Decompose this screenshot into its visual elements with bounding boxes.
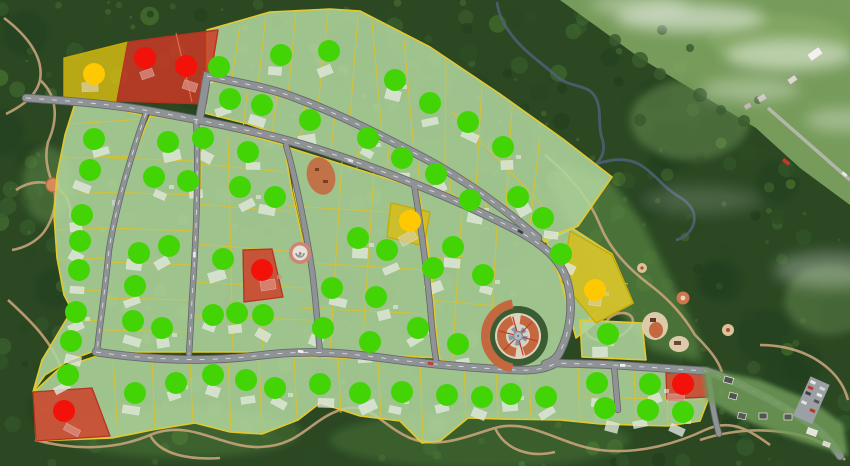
- lot-status-dot-y[interactable]: [83, 63, 105, 85]
- shed-rooftop: [169, 185, 174, 189]
- lot-status-dot-g[interactable]: [202, 304, 224, 326]
- lot-status-dot-g[interactable]: [391, 147, 413, 169]
- lot-status-dot-g[interactable]: [299, 109, 321, 131]
- house-rooftop: [444, 258, 461, 269]
- shed-rooftop: [664, 389, 669, 393]
- lot-status-dot-g[interactable]: [229, 176, 251, 198]
- lot-status-dot-g[interactable]: [208, 56, 230, 78]
- shed-rooftop: [288, 393, 293, 397]
- lot-status-dot-g[interactable]: [309, 373, 331, 395]
- spiral-park: [289, 242, 311, 264]
- lot-status-dot-g[interactable]: [71, 204, 93, 226]
- lot-status-dot-g[interactable]: [472, 264, 494, 286]
- lot-status-dot-g[interactable]: [192, 127, 214, 149]
- lot-status-dot-g[interactable]: [357, 127, 379, 149]
- lot-status-dot-g[interactable]: [212, 248, 234, 270]
- lot-status-dot-g[interactable]: [151, 317, 173, 339]
- lot-status-dot-r[interactable]: [672, 373, 694, 395]
- lot-status-dot-g[interactable]: [251, 94, 273, 116]
- lot-status-dot-g[interactable]: [535, 386, 557, 408]
- lot-status-dot-r[interactable]: [175, 55, 197, 77]
- lot-status-dot-g[interactable]: [202, 364, 224, 386]
- lot-status-dot-g[interactable]: [447, 333, 469, 355]
- lot-status-dot-g[interactable]: [122, 310, 144, 332]
- shed-rooftop: [256, 195, 261, 199]
- lot-status-dot-r[interactable]: [251, 259, 273, 281]
- lot-status-dot-g[interactable]: [219, 88, 241, 110]
- lot-status-dot-g[interactable]: [639, 373, 661, 395]
- lot-status-dot-g[interactable]: [68, 259, 90, 281]
- lot-status-dot-g[interactable]: [492, 136, 514, 158]
- house-rooftop: [70, 286, 84, 294]
- lot-status-dot-g[interactable]: [321, 277, 343, 299]
- lot-status-dot-g[interactable]: [407, 317, 429, 339]
- lot-status-dot-g[interactable]: [264, 186, 286, 208]
- lot-status-dot-g[interactable]: [500, 383, 522, 405]
- shed-rooftop: [393, 305, 398, 309]
- lot-status-dot-r[interactable]: [134, 47, 156, 69]
- lot-status-dot-g[interactable]: [124, 382, 146, 404]
- shed-rooftop: [277, 275, 282, 279]
- lot-status-dot-g[interactable]: [597, 323, 619, 345]
- lot-status-dot-g[interactable]: [264, 377, 286, 399]
- lot-status-dot-g[interactable]: [594, 397, 616, 419]
- lot-status-dot-g[interactable]: [237, 141, 259, 163]
- lot-status-dot-g[interactable]: [270, 44, 292, 66]
- house-rooftop: [318, 398, 334, 408]
- lot-status-dot-g[interactable]: [422, 257, 444, 279]
- house-rooftop: [592, 347, 607, 357]
- lot-status-dot-g[interactable]: [158, 235, 180, 257]
- house-rooftop: [156, 338, 169, 349]
- lot-status-dot-g[interactable]: [124, 275, 146, 297]
- lot-status-dot-g[interactable]: [79, 159, 101, 181]
- shed-rooftop: [172, 333, 177, 337]
- lot-status-dot-g[interactable]: [442, 236, 464, 258]
- house-rooftop: [228, 324, 242, 334]
- lot-status-dot-g[interactable]: [312, 317, 334, 339]
- lot-status-dot-g[interactable]: [349, 382, 371, 404]
- lot-status-dot-g[interactable]: [419, 92, 441, 114]
- lot-status-dot-g[interactable]: [507, 186, 529, 208]
- lot-status-dot-g[interactable]: [177, 170, 199, 192]
- lot-status-dot-r[interactable]: [53, 400, 75, 422]
- house-rooftop: [352, 248, 368, 259]
- lot-status-dot-g[interactable]: [586, 372, 608, 394]
- lot-status-dot-g[interactable]: [60, 330, 82, 352]
- lot-status-dot-g[interactable]: [550, 243, 572, 265]
- house-rooftop: [268, 66, 282, 75]
- lot-status-dot-g[interactable]: [637, 399, 659, 421]
- masterplan-map: [0, 0, 850, 466]
- lot-status-dot-g[interactable]: [318, 40, 340, 62]
- house-rooftop: [501, 160, 513, 169]
- lot-status-dot-g[interactable]: [384, 69, 406, 91]
- lot-status-dot-y[interactable]: [584, 279, 606, 301]
- shed-rooftop: [369, 243, 374, 247]
- shed-rooftop: [85, 317, 90, 321]
- lot-status-dot-g[interactable]: [376, 239, 398, 261]
- lot-status-dot-g[interactable]: [532, 207, 554, 229]
- shed-rooftop: [516, 155, 521, 159]
- trail-node-2-center: [681, 296, 686, 301]
- lot-status-dot-g[interactable]: [359, 331, 381, 353]
- lot-status-dot-g[interactable]: [128, 242, 150, 264]
- lot-status-dot-g[interactable]: [165, 372, 187, 394]
- trail-node-center: [640, 266, 643, 269]
- lot-status-dot-g[interactable]: [672, 401, 694, 423]
- lot-status-dot-g[interactable]: [436, 384, 458, 406]
- lot-status-dot-g[interactable]: [226, 302, 248, 324]
- lot-status-dot-g[interactable]: [471, 386, 493, 408]
- lot-status-dot-g[interactable]: [457, 111, 479, 133]
- lot-status-dot-g[interactable]: [347, 227, 369, 249]
- house-rooftop: [246, 163, 260, 170]
- lot-status-dot-g[interactable]: [83, 128, 105, 150]
- lot-status-dot-g[interactable]: [459, 189, 481, 211]
- shed-rooftop: [495, 280, 500, 284]
- lot-status-dot-g[interactable]: [235, 369, 257, 391]
- lot-status-dot-g[interactable]: [365, 286, 387, 308]
- lot-status-dot-g[interactable]: [252, 304, 274, 326]
- house-rooftop: [667, 394, 684, 402]
- lot-status-dot-g[interactable]: [391, 381, 413, 403]
- lot-status-dot-y[interactable]: [399, 210, 421, 232]
- lot-status-dot-g[interactable]: [143, 166, 165, 188]
- lot-status-dot-g[interactable]: [57, 364, 79, 386]
- lot-status-dot-g[interactable]: [425, 163, 447, 185]
- lot-status-dot-g[interactable]: [157, 131, 179, 153]
- lot-status-dot-g[interactable]: [69, 230, 91, 252]
- lot-status-dot-g[interactable]: [65, 301, 87, 323]
